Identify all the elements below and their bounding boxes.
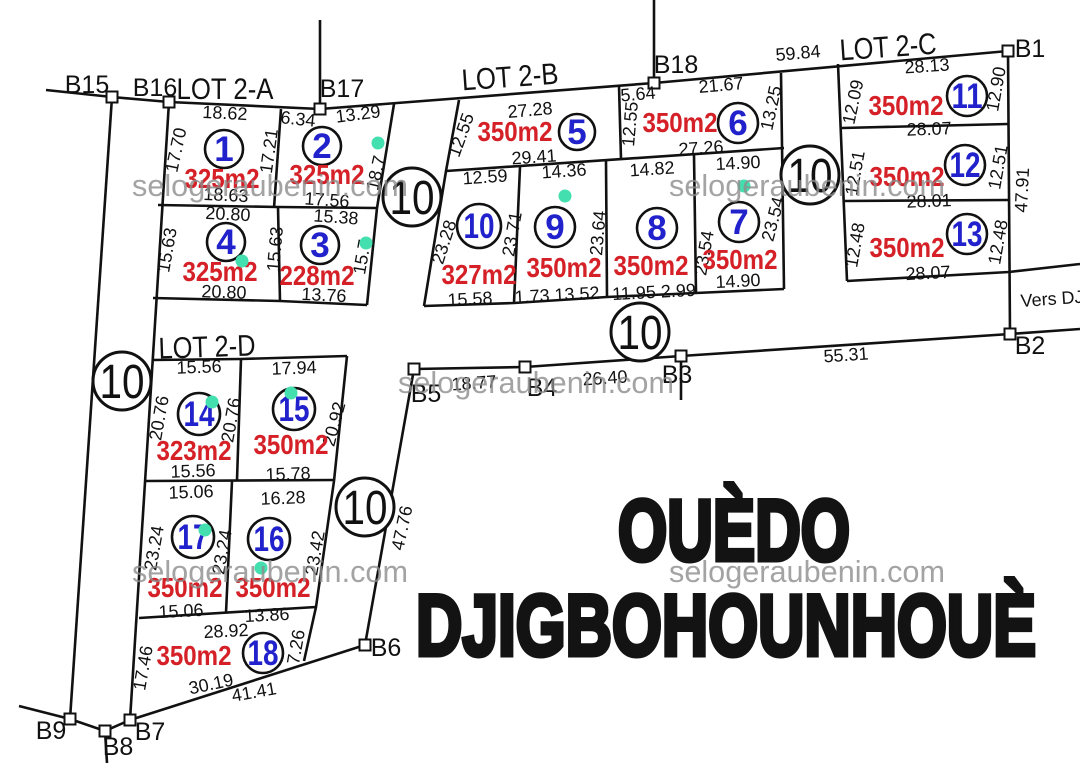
svg-text:10: 10 [343, 482, 388, 535]
svg-text:13: 13 [952, 215, 983, 254]
svg-text:14.36: 14.36 [541, 159, 587, 182]
svg-text:11: 11 [952, 77, 983, 116]
svg-text:59.84: 59.84 [775, 41, 822, 65]
svg-text:28.07: 28.07 [906, 118, 952, 140]
svg-text:350m2: 350m2 [157, 640, 232, 671]
svg-text:350m2: 350m2 [643, 107, 718, 138]
svg-text:228m2: 228m2 [280, 260, 355, 291]
svg-text:B8: B8 [103, 733, 134, 761]
svg-text:B18: B18 [654, 51, 698, 79]
svg-text:6.34: 6.34 [280, 107, 317, 131]
svg-text:350m2: 350m2 [870, 232, 945, 263]
svg-text:28.13: 28.13 [904, 54, 950, 77]
svg-text:55.31: 55.31 [823, 343, 869, 366]
svg-text:5: 5 [567, 113, 586, 152]
svg-text:B9: B9 [36, 717, 67, 745]
svg-text:10: 10 [618, 307, 663, 360]
svg-text:18: 18 [248, 634, 279, 673]
svg-text:350m2: 350m2 [254, 429, 329, 460]
svg-text:selogeraubenin.com: selogeraubenin.com [398, 365, 674, 400]
svg-text:LOT 2-B: LOT 2-B [461, 58, 560, 98]
svg-text:9: 9 [545, 208, 564, 247]
svg-text:323m2: 323m2 [157, 435, 232, 466]
svg-text:350m2: 350m2 [703, 244, 778, 275]
svg-text:B1: B1 [1015, 35, 1046, 63]
svg-text:8: 8 [647, 209, 666, 248]
svg-text:7: 7 [729, 203, 748, 242]
svg-text:28.07: 28.07 [905, 262, 951, 284]
svg-text:B7: B7 [135, 718, 166, 746]
svg-text:B15: B15 [65, 71, 109, 99]
svg-text:350m2: 350m2 [614, 250, 689, 281]
svg-text:selogeraubenin.com: selogeraubenin.com [132, 554, 408, 589]
svg-text:18.62: 18.62 [202, 102, 248, 124]
svg-text:DJIGBOHOUNHOUÈ: DJIGBOHOUNHOUÈ [416, 578, 1036, 674]
svg-text:12: 12 [950, 146, 981, 185]
svg-text:12.59: 12.59 [462, 165, 508, 188]
svg-text:350m2: 350m2 [527, 252, 602, 283]
svg-text:28.92: 28.92 [203, 620, 249, 642]
svg-text:B2: B2 [1015, 332, 1046, 360]
svg-text:10: 10 [464, 207, 495, 246]
svg-text:10: 10 [100, 356, 145, 409]
svg-text:B6: B6 [371, 634, 402, 662]
svg-text:17.94: 17.94 [271, 357, 317, 379]
svg-text:selogeraubenin.com: selogeraubenin.com [669, 168, 945, 203]
svg-text:350m2: 350m2 [869, 90, 944, 121]
svg-text:B16: B16 [133, 74, 177, 102]
svg-text:350m2: 350m2 [478, 116, 553, 147]
svg-text:21.67: 21.67 [698, 73, 745, 97]
svg-text:23.64: 23.64 [586, 210, 610, 257]
svg-text:LOT 2-A: LOT 2-A [177, 73, 274, 106]
svg-text:15.06: 15.06 [168, 481, 214, 503]
svg-text:B17: B17 [320, 75, 364, 103]
svg-text:15.56: 15.56 [176, 356, 222, 378]
svg-text:16.28: 16.28 [260, 487, 306, 509]
svg-text:15.78: 15.78 [265, 463, 311, 485]
svg-text:13.86: 13.86 [244, 604, 290, 626]
svg-text:47.91: 47.91 [1011, 167, 1033, 213]
svg-text:15.06: 15.06 [158, 600, 204, 622]
svg-text:327m2: 327m2 [442, 259, 517, 290]
svg-text:selogeraubenin.com: selogeraubenin.com [132, 168, 408, 203]
svg-text:selogeraubenin.com: selogeraubenin.com [669, 554, 945, 589]
svg-text:15.58: 15.58 [447, 288, 493, 310]
svg-text:12.55: 12.55 [618, 101, 642, 148]
svg-text:6: 6 [728, 104, 747, 143]
